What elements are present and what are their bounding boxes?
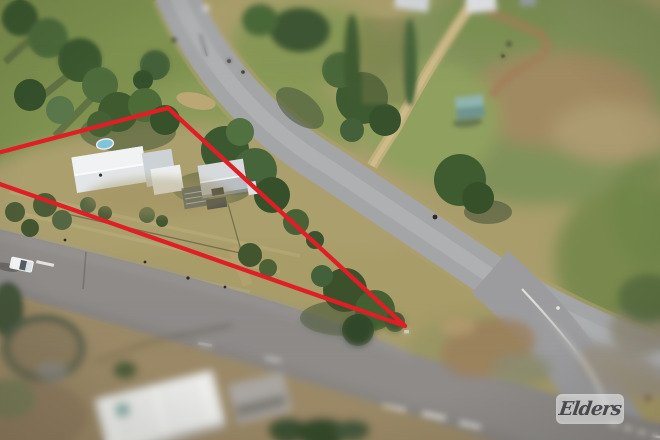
vignette [0,0,660,440]
aerial-photo: Elders [0,0,660,440]
elders-watermark: Elders [556,394,624,424]
scene-layer [0,0,660,440]
elders-logo-text: Elders [558,400,622,419]
